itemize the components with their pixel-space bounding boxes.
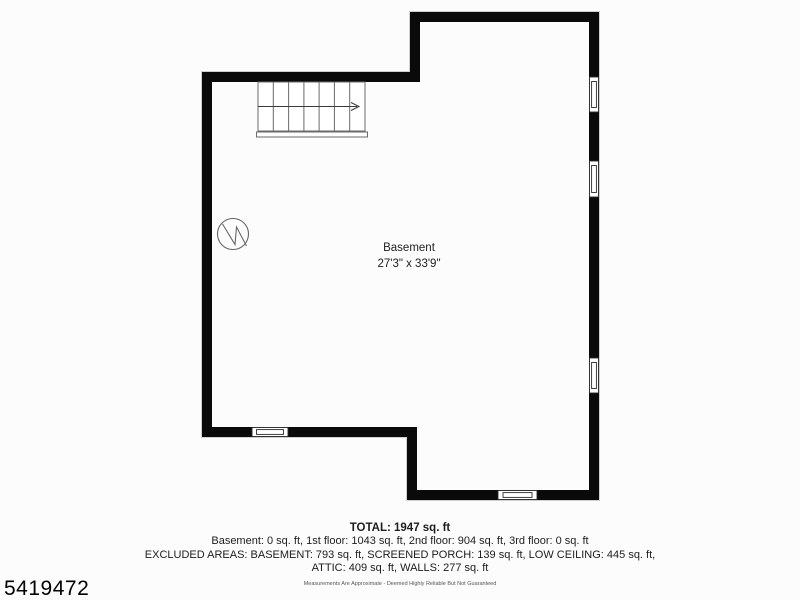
staircase-symbol [257, 82, 368, 137]
summary-line-floors: Basement: 0 sq. ft, 1st floor: 1043 sq. … [0, 535, 800, 548]
window-symbol-bottom-left [252, 428, 288, 437]
summary-line-excluded: EXCLUDED AREAS: BASEMENT: 793 sq. ft, SC… [0, 549, 800, 562]
disclaimer-text: Measurements Are Approximate - Deemed Hi… [0, 581, 800, 588]
listing-id: 5419472 [4, 578, 89, 600]
room-name: Basement [309, 240, 509, 256]
window-symbol-right-3 [590, 358, 599, 393]
summary-total: TOTAL: 1947 sq. ft [0, 522, 800, 535]
summary-line-attic-walls: ATTIC: 409 sq. ft, WALLS: 277 sq. ft [0, 562, 800, 575]
room-dimensions: 27'3" x 33'9" [309, 256, 509, 272]
window-symbol-right-1 [590, 77, 599, 112]
floor-plan-drawing [0, 0, 800, 600]
room-label: Basement 27'3" x 33'9" [309, 240, 509, 272]
utility-fixture-symbol [218, 219, 249, 250]
floor-plan-page: Basement 27'3" x 33'9" TOTAL: 1947 sq. f… [0, 0, 800, 600]
window-symbol-bottom-right [498, 491, 537, 500]
window-symbol-right-2 [590, 161, 599, 197]
area-summary: TOTAL: 1947 sq. ft Basement: 0 sq. ft, 1… [0, 522, 800, 576]
